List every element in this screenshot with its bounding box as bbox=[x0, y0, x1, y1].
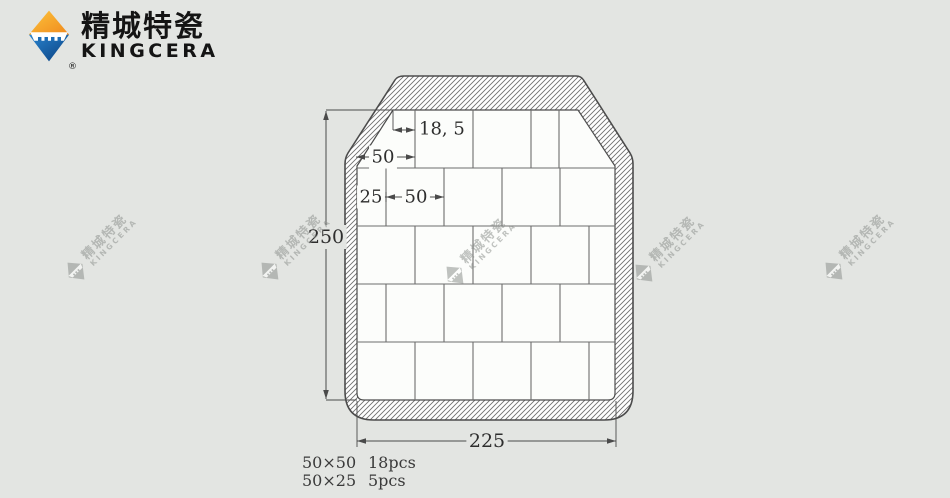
dimension-label-width-225: 225 bbox=[469, 430, 505, 452]
legend-row: 50×255pcs bbox=[302, 472, 416, 490]
dimension-tile-25-row2: 25 bbox=[357, 186, 386, 209]
dimension-arrow bbox=[323, 111, 329, 120]
dimension-label-offset-18-5: 18, 5 bbox=[419, 119, 465, 140]
brand-name-chinese: 精城特瓷 bbox=[81, 12, 219, 41]
brand-name-english: KINGCERA bbox=[81, 42, 219, 61]
kingcera-diamond-icon bbox=[26, 8, 72, 65]
legend-size: 50×25 bbox=[302, 472, 368, 490]
legend-count: 5pcs bbox=[368, 472, 406, 490]
tile-legend: 50×5018pcs50×255pcs bbox=[302, 454, 416, 489]
legend-size: 50×50 bbox=[302, 454, 368, 472]
kingcera-logo: ® 精城特瓷 KINGCERA bbox=[26, 8, 219, 65]
registered-mark: ® bbox=[68, 62, 77, 72]
legend-count: 18pcs bbox=[368, 454, 416, 472]
armor-plate-diagram: 25022518, 5502550 bbox=[0, 0, 950, 498]
dimension-label-tile-25-row2: 25 bbox=[360, 187, 383, 208]
dimension-arrow bbox=[323, 390, 329, 399]
legend-row: 50×5018pcs bbox=[302, 454, 416, 472]
dimension-label-tile-50-row2: 50 bbox=[405, 187, 428, 208]
dimension-arrow bbox=[357, 438, 366, 444]
dimension-arrow bbox=[607, 438, 616, 444]
dimension-label-height-250: 250 bbox=[308, 226, 344, 248]
page: 25022518, 5502550 ® 精城特瓷 KINGCERA bbox=[0, 0, 950, 498]
dimension-label-tile-50-row1: 50 bbox=[372, 147, 395, 168]
